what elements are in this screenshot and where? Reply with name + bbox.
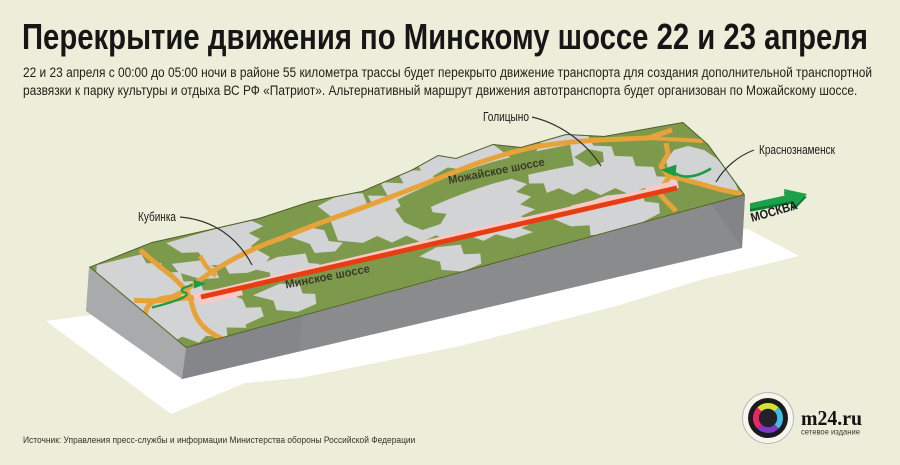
svg-text:Кубинка: Кубинка <box>138 210 176 224</box>
svg-text:Голицыно: Голицыно <box>483 110 529 124</box>
svg-text:Краснознаменск: Краснознаменск <box>759 143 835 157</box>
svg-text:сетевое издание: сетевое издание <box>801 427 860 437</box>
